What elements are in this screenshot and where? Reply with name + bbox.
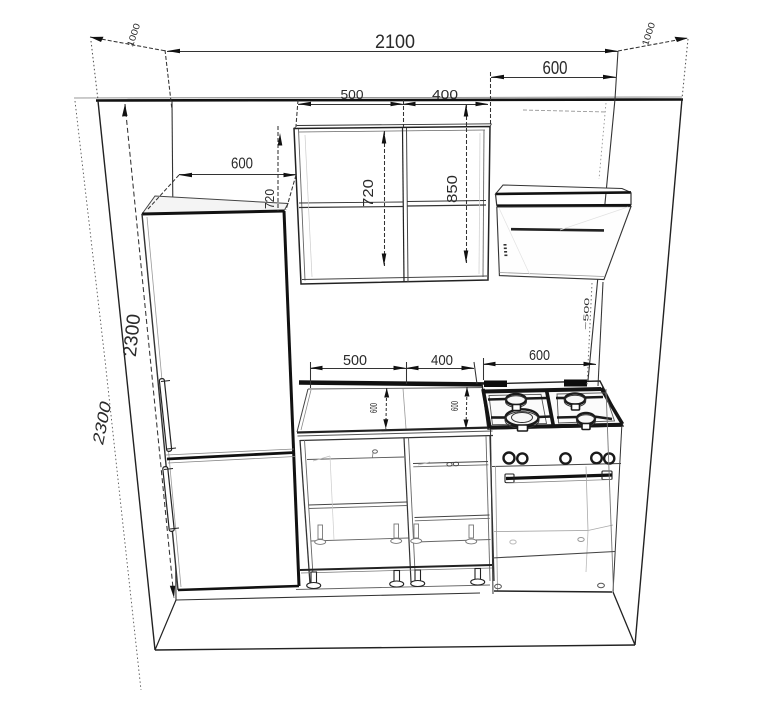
svg-text:2100: 2100 — [375, 32, 415, 53]
svg-text:500: 500 — [343, 352, 367, 369]
svg-text:720: 720 — [360, 179, 377, 207]
svg-text:400: 400 — [431, 352, 453, 369]
svg-text:720: 720 — [262, 189, 277, 209]
svg-text:~500: ~500 — [582, 298, 592, 330]
svg-text:600: 600 — [543, 58, 568, 78]
svg-text:400: 400 — [432, 87, 458, 102]
svg-text:2300: 2300 — [120, 313, 145, 358]
svg-text:600: 600 — [231, 156, 253, 173]
svg-text:600: 600 — [450, 401, 462, 411]
svg-text:600: 600 — [369, 403, 381, 413]
svg-text:600: 600 — [529, 347, 550, 364]
svg-text:500: 500 — [341, 87, 364, 102]
svg-text:850: 850 — [444, 175, 461, 203]
